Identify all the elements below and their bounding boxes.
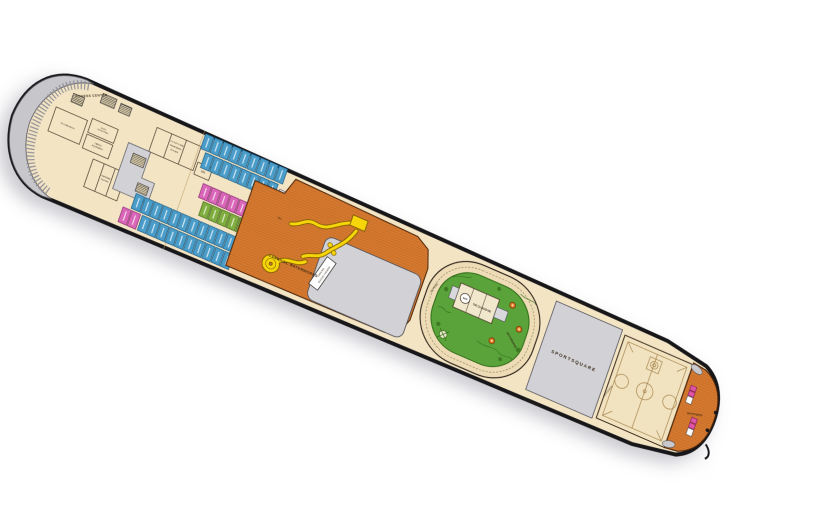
stern-tail — [701, 444, 711, 459]
deck-plan-drawing: CARNIVAL SEASIDE THEATRE — [0, 48, 746, 489]
deck-plan-canvas: CARNIVAL SEASIDE THEATRE — [0, 0, 820, 530]
cruise-ship-deck-plan: CARNIVAL SEASIDE THEATRE — [0, 48, 746, 489]
